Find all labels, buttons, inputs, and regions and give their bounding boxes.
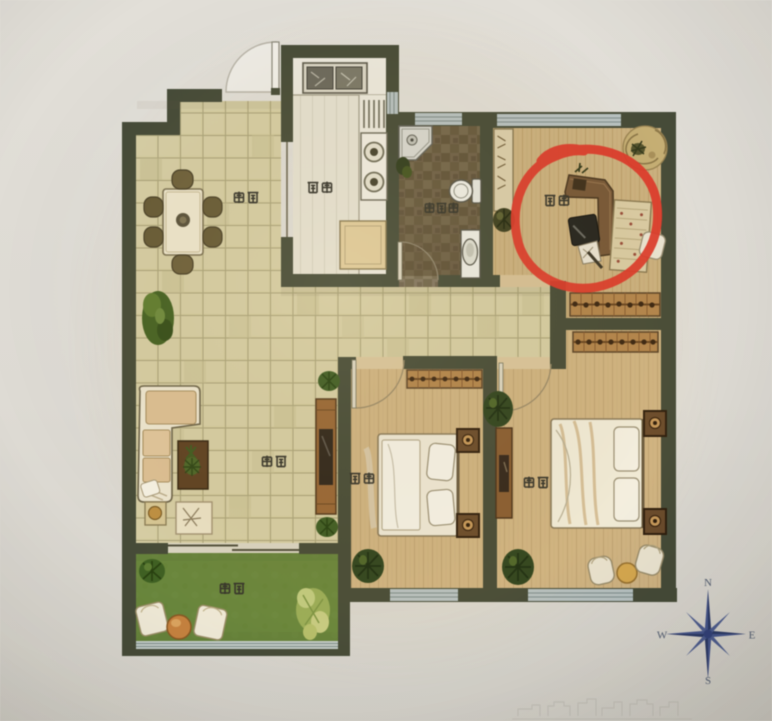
svg-text:W: W: [657, 630, 668, 642]
svg-text:S: S: [705, 675, 711, 687]
svg-text:N: N: [704, 577, 712, 589]
svg-text:E: E: [749, 630, 756, 642]
